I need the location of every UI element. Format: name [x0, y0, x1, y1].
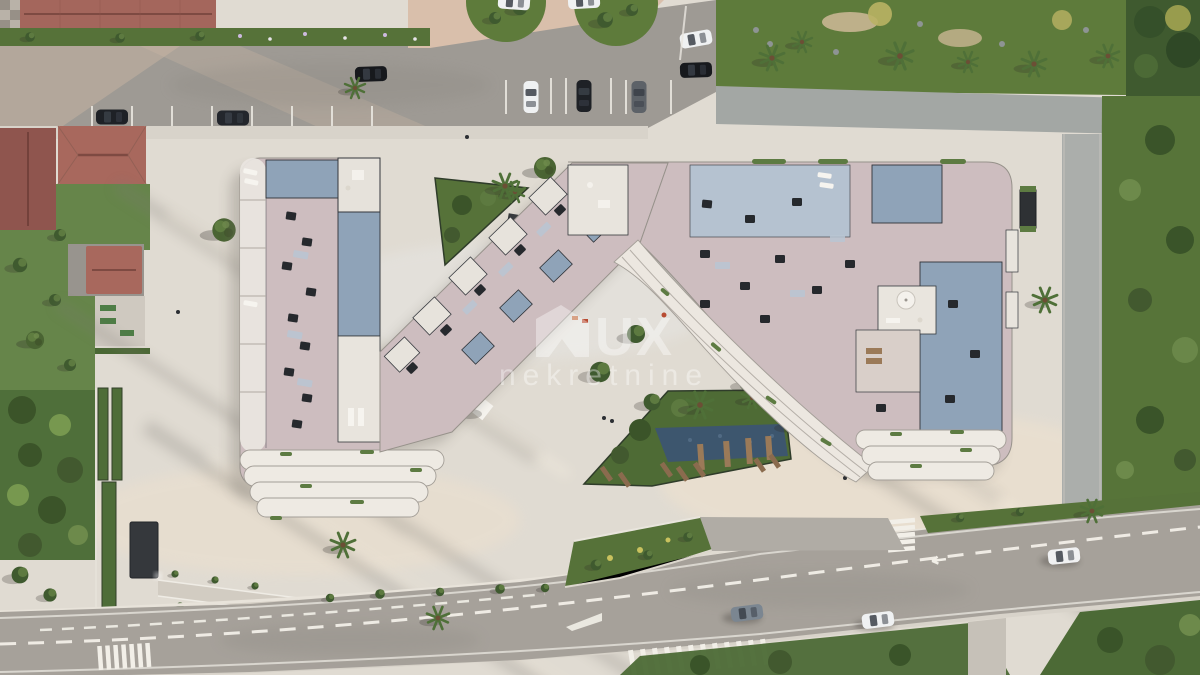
- tree-band-east: [1126, 0, 1200, 96]
- rooftop-terrace: [338, 158, 380, 212]
- rooftop-terrace: [856, 330, 920, 392]
- path-east-vertical: [1062, 134, 1102, 508]
- red-roof-building-north: [20, 0, 216, 30]
- left-wing-roof: [240, 158, 380, 488]
- rooftop-terrace: [338, 336, 380, 442]
- left-wing-balcony-tiers: [240, 450, 444, 520]
- parasol-terrace: [878, 286, 936, 334]
- right-wing-balcony-tiers: [856, 430, 1006, 480]
- watermark-tagline: nekretnine: [499, 359, 709, 392]
- watermark-wordmark: UX: [595, 307, 674, 367]
- bench-panel: [1020, 190, 1036, 228]
- hedge-band-north: [0, 28, 430, 46]
- aerial-site-render: UX nekretnine: [0, 0, 1200, 675]
- green-band-east: [1100, 96, 1200, 508]
